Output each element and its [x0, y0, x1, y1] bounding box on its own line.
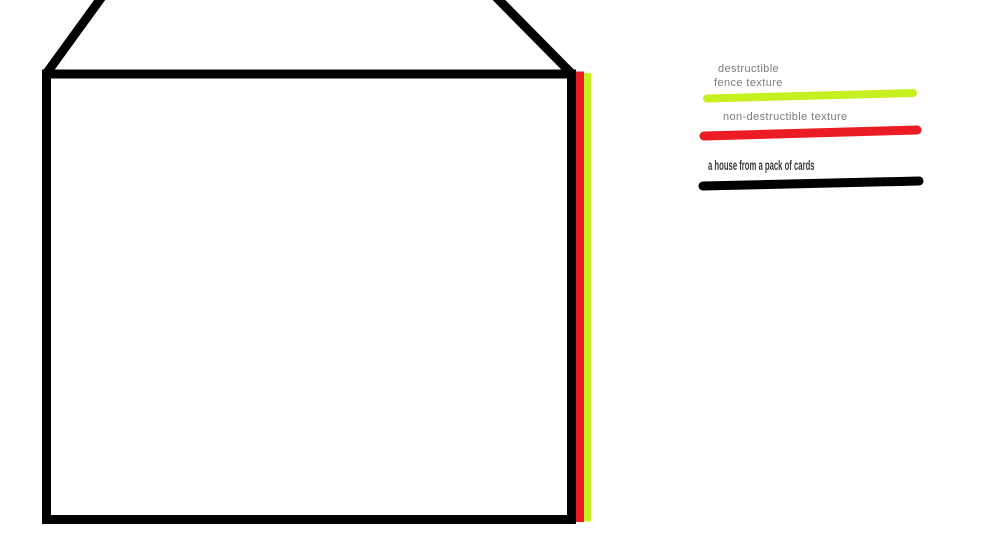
- legend-destructible-label-line1: destructible: [714, 62, 783, 76]
- house-body: [47, 74, 572, 520]
- house-roof-right-line: [493, 0, 572, 74]
- legend-destructible-label-line2: fence texture: [714, 76, 783, 90]
- legend-destructible-line: [707, 93, 913, 99]
- paint-canvas: destructible fence texture non-destructi…: [0, 0, 1000, 544]
- legend-destructible-label: destructible fence texture: [714, 62, 783, 90]
- house-drawing: [0, 0, 1000, 544]
- legend-non-destructible-label: non-destructible texture: [723, 110, 848, 124]
- legend-house-line: [703, 181, 919, 186]
- legend-non-destructible-line: [704, 130, 917, 136]
- house-roof-left-line: [46, 0, 104, 74]
- legend-house-label: a house from a pack of cards: [708, 157, 815, 173]
